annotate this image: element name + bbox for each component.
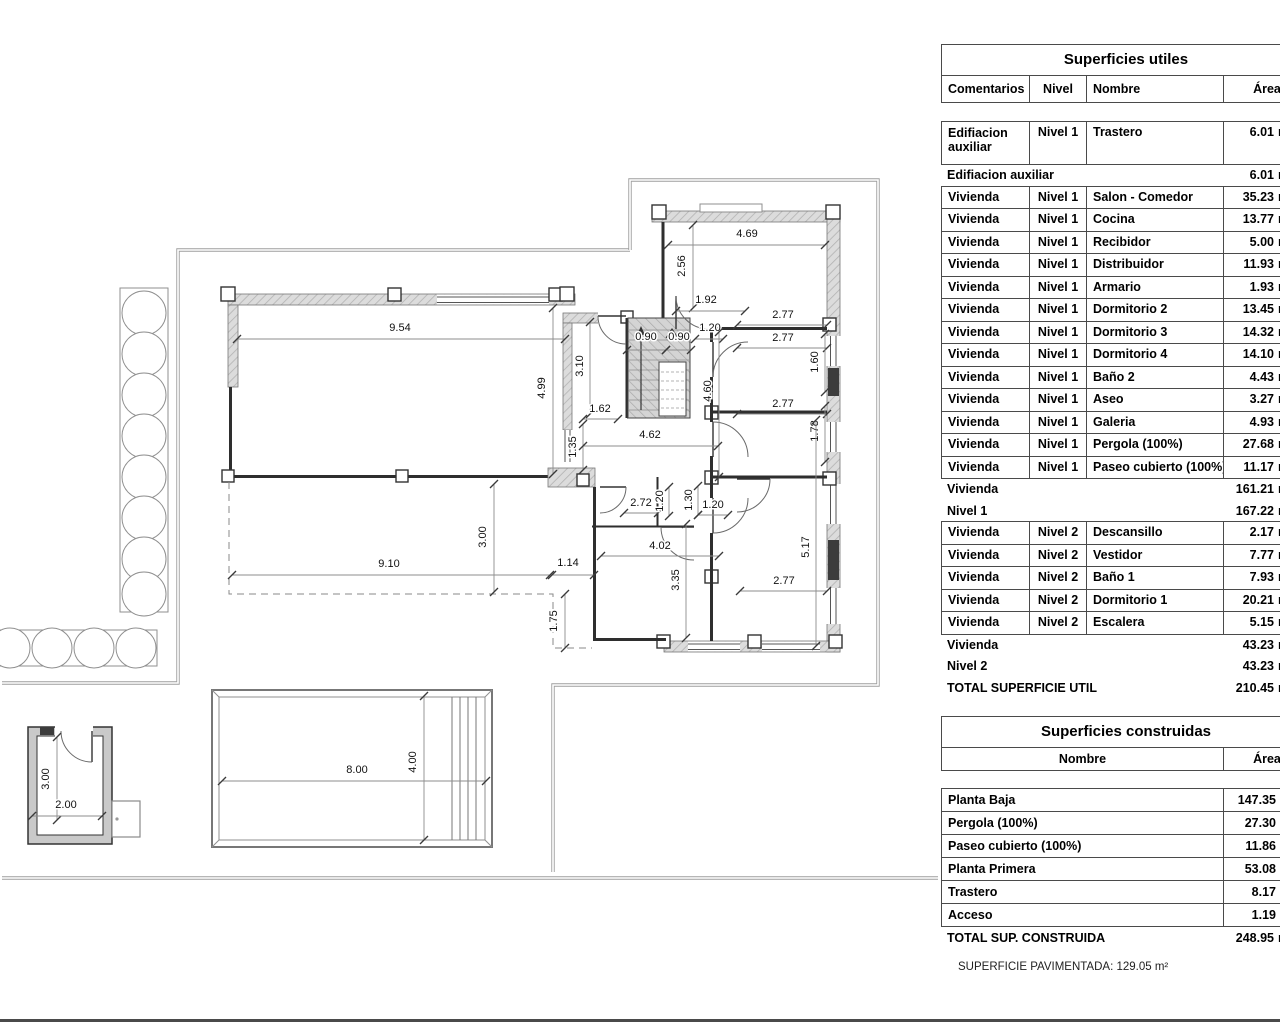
area-value: 27.68 xyxy=(1224,434,1274,456)
cell-area: 13.77m² xyxy=(1224,209,1280,231)
area-unit: m² xyxy=(1274,209,1280,231)
column-header: Nombre xyxy=(1087,76,1224,102)
area-value: 7.77 xyxy=(1224,545,1274,567)
dimension-label: 3.35 xyxy=(670,569,682,590)
cell-comentarios: Vivienda xyxy=(942,187,1030,209)
cell-nombre: Recibidor xyxy=(1087,232,1224,254)
area-value: 43.23 xyxy=(1224,635,1274,657)
subtotal-label: Vivienda xyxy=(941,479,1224,501)
cell-nivel: Nivel 1 xyxy=(1030,367,1087,389)
cell-area: 11.17m² xyxy=(1224,457,1280,479)
dimension-label: 4.62 xyxy=(639,429,660,441)
cell-area: 1.19m² xyxy=(1224,904,1280,926)
dimension-label: 1.20 xyxy=(699,322,720,334)
cell-comentarios: Vivienda xyxy=(942,612,1030,634)
cell-nombre: Dormitorio 2 xyxy=(1087,299,1224,321)
cell-nivel: Nivel 1 xyxy=(1030,389,1087,411)
cell-nombre: Trastero xyxy=(1087,122,1224,164)
cell-nivel: Nivel 1 xyxy=(1030,187,1087,209)
cell-nivel: Nivel 1 xyxy=(1030,322,1087,344)
table-subtotal-row: Vivienda161.21m² xyxy=(941,479,1280,501)
cell-nombre: Distribuidor xyxy=(1087,254,1224,276)
cell-area: 7.77m² xyxy=(1224,545,1280,567)
cell-area: 210.45m² xyxy=(1224,678,1280,700)
area-value: 2.17 xyxy=(1224,522,1274,544)
table-total-row: TOTAL SUP. CONSTRUIDA248.95m² xyxy=(941,927,1280,949)
cell-nivel: Nivel 2 xyxy=(1030,612,1087,634)
cell-nombre: Galeria xyxy=(1087,412,1224,434)
area-unit: m² xyxy=(1274,522,1280,544)
area-unit: m² xyxy=(1274,165,1280,187)
subtotal-label: Vivienda xyxy=(941,635,1224,657)
cell-area: 20.21m² xyxy=(1224,590,1280,612)
subtotal-label: Edifiacion auxiliar xyxy=(941,165,1224,187)
cell-comentarios: Edifiacion auxiliar xyxy=(942,122,1030,164)
cell-area: 7.93m² xyxy=(1224,567,1280,589)
cell-area: 27.68m² xyxy=(1224,434,1280,456)
column-header: Área xyxy=(1224,748,1280,770)
table-subtotal-row: Nivel 1167.22m² xyxy=(941,501,1280,523)
cell-nombre: Dormitorio 3 xyxy=(1087,322,1224,344)
table-row: ViviendaNivel 1Salon - Comedor35.23m² xyxy=(941,186,1280,210)
cell-nombre: Dormitorio 4 xyxy=(1087,344,1224,366)
dimension-label: 1.20 xyxy=(654,490,666,511)
dimension-label: 1.78 xyxy=(809,420,821,441)
paving-surface-note: SUPERFICIE PAVIMENTADA: 129.05 m² xyxy=(958,961,1168,973)
area-unit: m² xyxy=(1274,479,1280,501)
cell-nombre: Cocina xyxy=(1087,209,1224,231)
dimension-label: 3.10 xyxy=(574,355,586,376)
cell-area: 1.93m² xyxy=(1224,277,1280,299)
dimension-label: 4.02 xyxy=(649,540,670,552)
cell-comentarios: Vivienda xyxy=(942,457,1030,479)
area-value: 14.32 xyxy=(1224,322,1274,344)
cell-nombre: Pergola (100%) xyxy=(942,812,1224,834)
dimension-label: 1.60 xyxy=(809,351,821,372)
area-unit: m² xyxy=(1274,927,1280,949)
subtotal-label: Nivel 1 xyxy=(941,501,1224,523)
cell-comentarios: Vivienda xyxy=(942,344,1030,366)
dimension-label: 9.10 xyxy=(378,558,399,570)
dimension-label: 2.77 xyxy=(772,309,793,321)
cell-nivel: Nivel 1 xyxy=(1030,122,1087,164)
cell-area: 2.17m² xyxy=(1224,522,1280,544)
table-row: ViviendaNivel 1Dormitorio 213.45m² xyxy=(941,298,1280,322)
dimension-label: 2.77 xyxy=(773,575,794,587)
table-subtotal-row: Vivienda43.23m² xyxy=(941,635,1280,657)
cell-comentarios: Vivienda xyxy=(942,545,1030,567)
cell-area: 4.43m² xyxy=(1224,367,1280,389)
cell-nombre: Baño 1 xyxy=(1087,567,1224,589)
area-unit: m² xyxy=(1274,590,1280,612)
area-value: 35.23 xyxy=(1224,187,1274,209)
table-superficies-construidas: Superficies construidas NombreÁrea Plant… xyxy=(941,716,1280,949)
table-row: ViviendaNivel 1Distribuidor11.93m² xyxy=(941,253,1280,277)
cell-comentarios: Vivienda xyxy=(942,434,1030,456)
cell-area: 53.08m² xyxy=(1224,858,1280,880)
area-unit: m² xyxy=(1274,322,1280,344)
table-subtotal-row: Edifiacion auxiliar6.01m² xyxy=(941,165,1280,187)
area-unit: m² xyxy=(1276,858,1280,880)
area-unit: m² xyxy=(1274,612,1280,634)
cell-area: 35.23m² xyxy=(1224,187,1280,209)
cell-comentarios: Vivienda xyxy=(942,590,1030,612)
cell-area: 167.22m² xyxy=(1224,501,1280,523)
table-row: ViviendaNivel 2Vestidor7.77m² xyxy=(941,544,1280,568)
area-value: 248.95 xyxy=(1224,927,1274,949)
area-unit: m² xyxy=(1274,434,1280,456)
table-title: Superficies utiles xyxy=(941,44,1280,76)
column-header: Nivel xyxy=(1030,76,1087,102)
dimension-label: 3.00 xyxy=(40,768,52,789)
area-unit: m² xyxy=(1274,187,1280,209)
cell-nombre: Pergola (100%) xyxy=(1087,434,1224,456)
table-row: ViviendaNivel 2Descansillo2.17m² xyxy=(941,521,1280,545)
cell-nivel: Nivel 2 xyxy=(1030,567,1087,589)
cell-area: 161.21m² xyxy=(1224,479,1280,501)
area-value: 4.43 xyxy=(1224,367,1274,389)
floor-plan-svg: 9.544.993.104.692.561.920.900.901.202.77… xyxy=(0,0,940,1024)
table-row: ViviendaNivel 1Dormitorio 414.10m² xyxy=(941,343,1280,367)
cell-nombre: Descansillo xyxy=(1087,522,1224,544)
area-value: 161.21 xyxy=(1224,479,1274,501)
table-row: ViviendaNivel 1Pergola (100%)27.68m² xyxy=(941,433,1280,457)
area-value: 11.17 xyxy=(1224,457,1274,479)
dimension-label: 2.77 xyxy=(772,398,793,410)
cell-area: 14.10m² xyxy=(1224,344,1280,366)
cell-area: 6.01m² xyxy=(1224,165,1280,187)
column-header: Comentarios xyxy=(942,76,1030,102)
area-unit: m² xyxy=(1274,412,1280,434)
area-unit: m² xyxy=(1274,501,1280,523)
dimension-label: 3.00 xyxy=(477,526,489,547)
table-row: ViviendaNivel 2Dormitorio 120.21m² xyxy=(941,589,1280,613)
cell-comentarios: Vivienda xyxy=(942,522,1030,544)
dimension-label: 1.14 xyxy=(557,557,578,569)
hedge-bottom xyxy=(0,628,157,668)
cell-comentarios: Vivienda xyxy=(942,209,1030,231)
table-header-row: ComentariosNivelNombreÁrea xyxy=(941,75,1280,103)
table-row: Planta Baja147.35m² xyxy=(941,788,1280,812)
area-unit: m² xyxy=(1274,344,1280,366)
area-unit: m² xyxy=(1276,789,1280,811)
area-unit: m² xyxy=(1276,835,1280,857)
dimension-label: 2.00 xyxy=(55,799,76,811)
table-subtotal-row: Nivel 243.23m² xyxy=(941,656,1280,678)
area-value: 6.01 xyxy=(1224,122,1274,164)
cell-area: 8.17m² xyxy=(1224,881,1280,903)
area-unit: m² xyxy=(1274,678,1280,700)
table-row: ViviendaNivel 1Armario1.93m² xyxy=(941,276,1280,300)
cell-comentarios: Vivienda xyxy=(942,232,1030,254)
dimension-label: 2.56 xyxy=(676,255,688,276)
table-title: Superficies construidas xyxy=(941,716,1280,748)
area-value: 1.19 xyxy=(1224,904,1276,926)
table-row: ViviendaNivel 2Escalera5.15m² xyxy=(941,611,1280,635)
house-outer-walls xyxy=(548,204,842,652)
table-row: ViviendaNivel 1Cocina13.77m² xyxy=(941,208,1280,232)
dimension-label: 1.62 xyxy=(589,403,610,415)
table-row: ViviendaNivel 1Aseo3.27m² xyxy=(941,388,1280,412)
table-row: ViviendaNivel 2Baño 17.93m² xyxy=(941,566,1280,590)
cell-nombre: Escalera xyxy=(1087,612,1224,634)
area-value: 11.93 xyxy=(1224,254,1274,276)
cell-nivel: Nivel 2 xyxy=(1030,522,1087,544)
dimension-label: 5.17 xyxy=(800,536,812,557)
table-row: ViviendaNivel 1Galeria4.93m² xyxy=(941,411,1280,435)
area-value: 210.45 xyxy=(1224,678,1274,700)
dimension-label: 1.20 xyxy=(702,499,723,511)
table-superficies-utiles: Superficies utiles ComentariosNivelNombr… xyxy=(941,44,1280,699)
table-row: Trastero8.17m² xyxy=(941,880,1280,904)
cell-area: 13.45m² xyxy=(1224,299,1280,321)
area-value: 5.00 xyxy=(1224,232,1274,254)
area-value: 8.17 xyxy=(1224,881,1276,903)
table-row: ViviendaNivel 1Paseo cubierto (100%)11.1… xyxy=(941,456,1280,480)
area-value: 3.27 xyxy=(1224,389,1274,411)
area-unit: m² xyxy=(1274,567,1280,589)
cell-nivel: Nivel 1 xyxy=(1030,344,1087,366)
cell-comentarios: Vivienda xyxy=(942,299,1030,321)
cell-nombre: Aseo xyxy=(1087,389,1224,411)
table-rows: Planta Baja147.35m²Pergola (100%)27.30m²… xyxy=(941,788,1280,949)
cell-comentarios: Vivienda xyxy=(942,367,1030,389)
area-value: 20.21 xyxy=(1224,590,1274,612)
dimension-label: 1.35 xyxy=(567,436,579,457)
area-unit: m² xyxy=(1274,299,1280,321)
cell-nivel: Nivel 1 xyxy=(1030,299,1087,321)
total-label: TOTAL SUP. CONSTRUIDA xyxy=(941,927,1224,949)
cell-area: 43.23m² xyxy=(1224,656,1280,678)
table-total-row: TOTAL SUPERFICIE UTIL210.45m² xyxy=(941,678,1280,700)
area-value: 167.22 xyxy=(1224,501,1274,523)
dimension-label: 9.54 xyxy=(389,322,410,334)
cell-nombre: Baño 2 xyxy=(1087,367,1224,389)
cell-nivel: Nivel 1 xyxy=(1030,254,1087,276)
cell-area: 11.86m² xyxy=(1224,835,1280,857)
cell-nivel: Nivel 1 xyxy=(1030,457,1087,479)
cell-nombre: Vestidor xyxy=(1087,545,1224,567)
cell-area: 14.32m² xyxy=(1224,322,1280,344)
subtotal-label: TOTAL SUPERFICIE UTIL xyxy=(941,678,1224,700)
cell-comentarios: Vivienda xyxy=(942,412,1030,434)
cell-area: 147.35m² xyxy=(1224,789,1280,811)
cell-area: 248.95m² xyxy=(1224,927,1280,949)
floor-plan: 9.544.993.104.692.561.920.900.901.202.77… xyxy=(0,0,940,1024)
area-value: 11.86 xyxy=(1224,835,1276,857)
table-rows: Edifiacion auxiliarNivel 1Trastero6.01m²… xyxy=(941,121,1280,699)
area-value: 14.10 xyxy=(1224,344,1274,366)
cell-comentarios: Vivienda xyxy=(942,322,1030,344)
table-row: Edifiacion auxiliarNivel 1Trastero6.01m² xyxy=(941,121,1280,165)
cell-area: 11.93m² xyxy=(1224,254,1280,276)
cell-nombre: Armario xyxy=(1087,277,1224,299)
table-row: Planta Primera53.08m² xyxy=(941,857,1280,881)
cell-nombre: Salon - Comedor xyxy=(1087,187,1224,209)
area-unit: m² xyxy=(1274,367,1280,389)
area-value: 7.93 xyxy=(1224,567,1274,589)
terrace-dashed-edge xyxy=(229,482,592,648)
cell-nombre: Planta Primera xyxy=(942,858,1224,880)
cell-comentarios: Vivienda xyxy=(942,277,1030,299)
cell-nivel: Nivel 2 xyxy=(1030,545,1087,567)
area-unit: m² xyxy=(1274,232,1280,254)
cell-nivel: Nivel 1 xyxy=(1030,434,1087,456)
area-unit: m² xyxy=(1274,122,1280,164)
dimension-label: 4.99 xyxy=(536,377,548,398)
area-value: 6.01 xyxy=(1224,165,1274,187)
area-value: 147.35 xyxy=(1224,789,1276,811)
cell-nombre: Acceso xyxy=(942,904,1224,926)
cell-comentarios: Vivienda xyxy=(942,254,1030,276)
dimension-label: 2.77 xyxy=(772,332,793,344)
table-row: ViviendaNivel 1Dormitorio 314.32m² xyxy=(941,321,1280,345)
table-row: ViviendaNivel 1Baño 24.43m² xyxy=(941,366,1280,390)
area-unit: m² xyxy=(1274,635,1280,657)
area-value: 53.08 xyxy=(1224,858,1276,880)
table-row: Paseo cubierto (100%)11.86m² xyxy=(941,834,1280,858)
area-value: 43.23 xyxy=(1224,656,1274,678)
column-header: Nombre xyxy=(942,748,1224,770)
area-value: 5.15 xyxy=(1224,612,1274,634)
area-unit: m² xyxy=(1276,881,1280,903)
table-row: Pergola (100%)27.30m² xyxy=(941,811,1280,835)
cell-nombre: Dormitorio 1 xyxy=(1087,590,1224,612)
cell-nombre: Paseo cubierto (100%) xyxy=(1087,457,1224,479)
hedge-left xyxy=(120,288,168,616)
table-row: Acceso1.19m² xyxy=(941,903,1280,927)
pergola xyxy=(221,287,575,482)
cell-comentarios: Vivienda xyxy=(942,567,1030,589)
area-value: 13.77 xyxy=(1224,209,1274,231)
dimension-label: 1.92 xyxy=(695,294,716,306)
column-header: Área xyxy=(1224,76,1280,102)
dimension-label: 2.72 xyxy=(630,497,651,509)
cell-nivel: Nivel 1 xyxy=(1030,277,1087,299)
cell-nombre: Paseo cubierto (100%) xyxy=(942,835,1224,857)
cell-nombre: Planta Baja xyxy=(942,789,1224,811)
table-row: ViviendaNivel 1Recibidor5.00m² xyxy=(941,231,1280,255)
area-unit: m² xyxy=(1274,389,1280,411)
cell-area: 3.27m² xyxy=(1224,389,1280,411)
cell-nivel: Nivel 2 xyxy=(1030,590,1087,612)
cell-area: 5.00m² xyxy=(1224,232,1280,254)
area-unit: m² xyxy=(1274,277,1280,299)
area-value: 4.93 xyxy=(1224,412,1274,434)
subtotal-label: Nivel 2 xyxy=(941,656,1224,678)
cell-area: 27.30m² xyxy=(1224,812,1280,834)
area-unit: m² xyxy=(1276,904,1280,926)
cell-area: 4.93m² xyxy=(1224,412,1280,434)
area-unit: m² xyxy=(1274,457,1280,479)
area-value: 1.93 xyxy=(1224,277,1274,299)
area-unit: m² xyxy=(1276,812,1280,834)
area-value: 13.45 xyxy=(1224,299,1274,321)
dimension-label: 4.60 xyxy=(702,380,714,401)
dimension-label: 4.00 xyxy=(407,751,419,772)
area-unit: m² xyxy=(1274,545,1280,567)
cell-nivel: Nivel 1 xyxy=(1030,232,1087,254)
dimension-label: 0.90 xyxy=(668,331,689,343)
drawing-frame-bottom-border xyxy=(0,1019,1280,1022)
table-header-row: NombreÁrea xyxy=(941,747,1280,771)
cell-nivel: Nivel 1 xyxy=(1030,412,1087,434)
area-value: 27.30 xyxy=(1224,812,1276,834)
cell-nombre: Trastero xyxy=(942,881,1224,903)
cell-comentarios: Vivienda xyxy=(942,389,1030,411)
dimension-label: 1.30 xyxy=(683,489,695,510)
cell-area: 43.23m² xyxy=(1224,635,1280,657)
dimension-label: 1.75 xyxy=(548,610,560,631)
dimension-label: 0.90 xyxy=(635,331,656,343)
dimension-label: 4.69 xyxy=(736,228,757,240)
cell-nivel: Nivel 1 xyxy=(1030,209,1087,231)
area-unit: m² xyxy=(1274,254,1280,276)
cell-area: 6.01m² xyxy=(1224,122,1280,164)
dimension-label: 8.00 xyxy=(346,764,367,776)
cell-area: 5.15m² xyxy=(1224,612,1280,634)
area-unit: m² xyxy=(1274,656,1280,678)
